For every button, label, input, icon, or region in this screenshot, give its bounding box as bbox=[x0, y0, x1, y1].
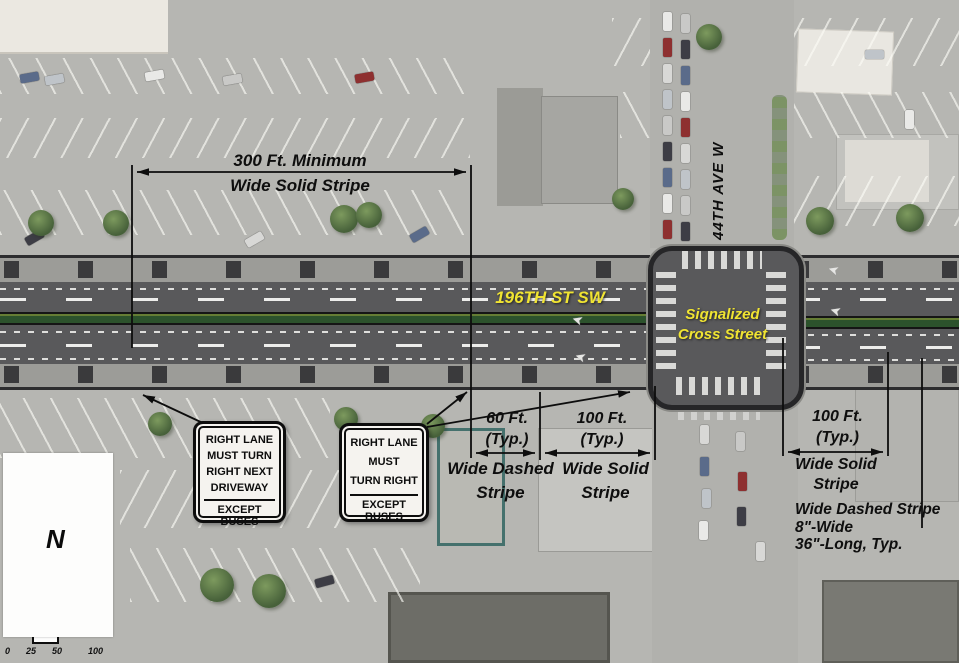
sign2-line1: RIGHT LANE bbox=[346, 434, 422, 453]
sign1-divider bbox=[204, 499, 275, 501]
avenue-label: 44TH AVE W bbox=[710, 105, 727, 240]
main-street-label: 196TH ST SW bbox=[467, 288, 633, 308]
cross-street-line2: Cross Street bbox=[650, 325, 795, 345]
dim100-east-stripe-line1: Wide Solid bbox=[786, 455, 886, 475]
dim60-stripe-line1: Wide Dashed bbox=[438, 457, 563, 481]
scale-label-25: 25 bbox=[26, 646, 36, 656]
scale-label-0: 0 bbox=[5, 646, 10, 656]
dim300-label-line1: 300 Ft. Minimum bbox=[175, 150, 425, 172]
dim100-east-label: 100 Ft. (Typ.) bbox=[790, 406, 885, 448]
dim100-center-label: 100 Ft. (Typ.) bbox=[552, 408, 652, 450]
note-line3: 36"-Long, Typ. bbox=[795, 536, 940, 554]
sign2-line2: MUST bbox=[346, 453, 422, 472]
sign-right-lane-must-turn-right: RIGHT LANE MUST TURN RIGHT EXCEPT BUSES bbox=[339, 423, 429, 522]
leader-sign2-near bbox=[427, 392, 467, 424]
dim100-east-typ: (Typ.) bbox=[790, 427, 885, 448]
dim60-typ: (Typ.) bbox=[462, 429, 552, 450]
sign1-line2: MUST TURN bbox=[200, 448, 279, 464]
sign1-footer: EXCEPT BUSES bbox=[200, 504, 279, 528]
sign1-line1: RIGHT LANE bbox=[200, 432, 279, 448]
scale-label-50: 50 bbox=[52, 646, 62, 656]
sign2-line3: TURN RIGHT bbox=[346, 472, 422, 491]
sign2-footer: EXCEPT BUSES bbox=[346, 499, 422, 523]
north-label: N bbox=[46, 524, 65, 555]
dim60-stripe-line2: Stripe bbox=[438, 481, 563, 505]
dim60-value: 60 Ft. bbox=[462, 408, 552, 429]
sign1-body: RIGHT LANE MUST TURN RIGHT NEXT DRIVEWAY bbox=[200, 432, 279, 496]
scale-label-100: 100 bbox=[88, 646, 103, 656]
dim300-label-line2: Wide Solid Stripe bbox=[175, 175, 425, 197]
note-line2: 8"-Wide bbox=[795, 519, 940, 537]
dim100-east-stripe-label: Wide Solid Stripe bbox=[786, 455, 886, 495]
dim60-stripe-label: Wide Dashed Stripe bbox=[438, 457, 563, 505]
sign-right-lane-next-driveway: RIGHT LANE MUST TURN RIGHT NEXT DRIVEWAY… bbox=[193, 421, 286, 523]
dim100-center-stripe-line2: Stripe bbox=[548, 481, 663, 505]
leader-sign1 bbox=[143, 395, 205, 424]
dim100-east-stripe-line2: Stripe bbox=[786, 475, 886, 495]
sign1-line3: RIGHT NEXT bbox=[200, 464, 279, 480]
sign1-line4: DRIVEWAY bbox=[200, 480, 279, 496]
dim100-center-stripe-label: Wide Solid Stripe bbox=[548, 457, 663, 505]
wide-dashed-note: Wide Dashed Stripe 8"-Wide 36"-Long, Typ… bbox=[795, 501, 940, 554]
note-line1: Wide Dashed Stripe bbox=[795, 501, 940, 519]
sign2-body: RIGHT LANE MUST TURN RIGHT bbox=[346, 434, 422, 491]
dim100-center-value: 100 Ft. bbox=[552, 408, 652, 429]
dim100-center-typ: (Typ.) bbox=[552, 429, 652, 450]
dim100-center-stripe-line1: Wide Solid bbox=[548, 457, 663, 481]
dimension-overlay bbox=[0, 0, 959, 663]
cross-street-line1: Signalized bbox=[650, 305, 795, 325]
aerial-plan-view: ➤ ➤ ➤ ➤ N bbox=[0, 0, 959, 663]
dim60-label: 60 Ft. (Typ.) bbox=[462, 408, 552, 450]
cross-street-label: Signalized Cross Street bbox=[650, 305, 795, 345]
dim100-east-value: 100 Ft. bbox=[790, 406, 885, 427]
sign2-divider bbox=[350, 494, 418, 496]
